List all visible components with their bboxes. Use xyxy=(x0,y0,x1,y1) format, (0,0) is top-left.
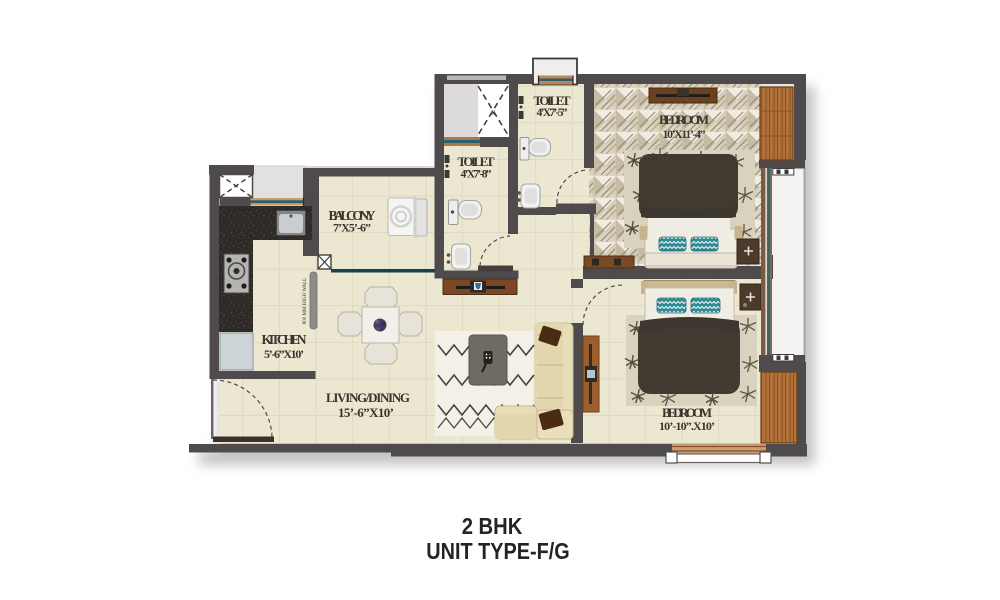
svg-text:15’-6”X10’: 15’-6”X10’ xyxy=(338,405,394,420)
svg-text:4’X7’-8”: 4’X7’-8” xyxy=(461,169,492,181)
svg-text:7’X5’-6”: 7’X5’-6” xyxy=(333,221,371,235)
svg-text:KITCHEN: KITCHEN xyxy=(262,332,307,347)
svg-text:BEDROOM: BEDROOM xyxy=(659,112,709,127)
svg-text:TOILET: TOILET xyxy=(534,93,571,108)
svg-text:TOILET: TOILET xyxy=(458,154,495,169)
svg-text:2 BHK: 2 BHK xyxy=(462,513,523,540)
svg-text:x: x xyxy=(491,107,496,117)
svg-text:10’-10”.X10’: 10’-10”.X10’ xyxy=(659,419,715,433)
svg-text:4’X7’-5”: 4’X7’-5” xyxy=(537,107,568,119)
svg-text:UNIT TYPE-F/G: UNIT TYPE-F/G xyxy=(426,537,569,564)
svg-text:BEDROOM: BEDROOM xyxy=(662,405,712,420)
svg-text:10’X11’-4”: 10’X11’-4” xyxy=(663,127,706,141)
svg-text:5’-6”X10’: 5’-6”X10’ xyxy=(264,347,304,361)
svg-text:LIVING/DINING: LIVING/DINING xyxy=(326,390,410,405)
svg-text:800 MM HIGH WALL: 800 MM HIGH WALL xyxy=(303,278,308,324)
